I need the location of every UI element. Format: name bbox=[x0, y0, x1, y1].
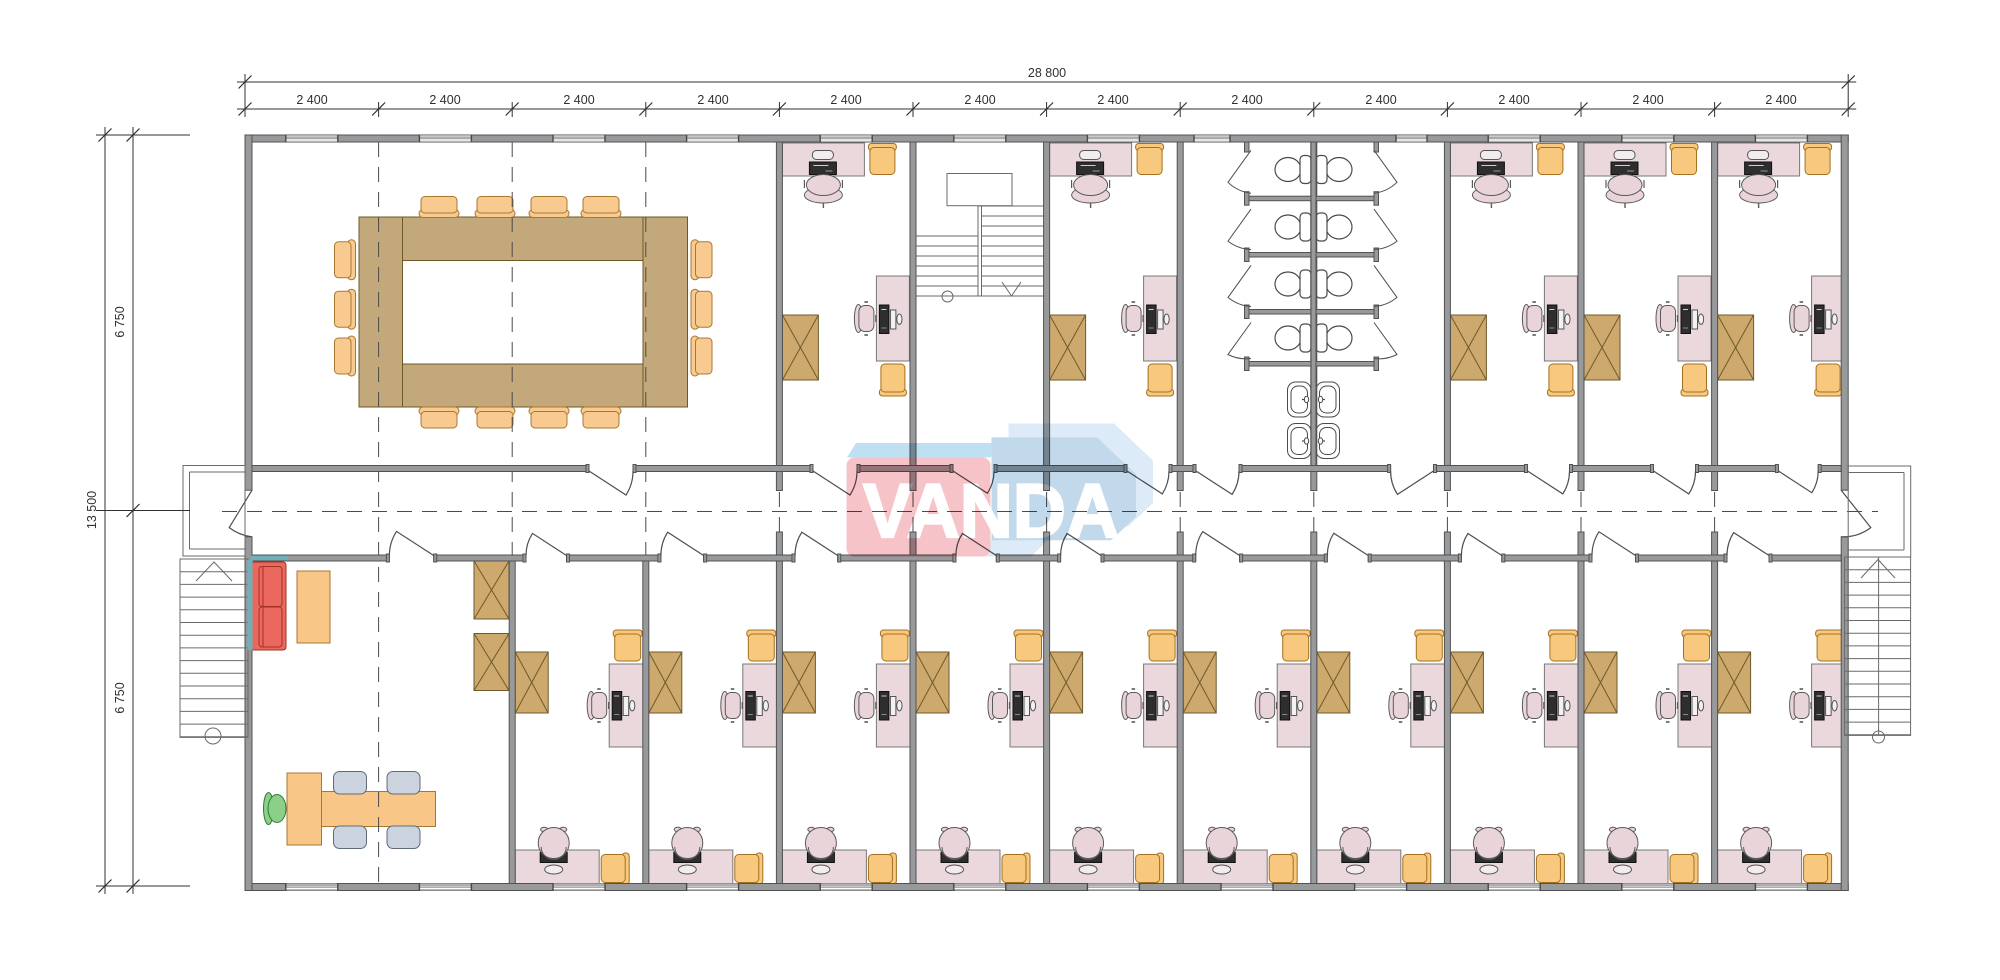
svg-text:13 500: 13 500 bbox=[85, 491, 99, 529]
svg-text:6 750: 6 750 bbox=[113, 682, 127, 713]
svg-text:28 800: 28 800 bbox=[1028, 66, 1066, 80]
svg-text:2 400: 2 400 bbox=[563, 93, 594, 107]
svg-text:2 400: 2 400 bbox=[1231, 93, 1262, 107]
svg-text:2 400: 2 400 bbox=[1498, 93, 1529, 107]
svg-text:2 400: 2 400 bbox=[830, 93, 861, 107]
svg-text:VANDA: VANDA bbox=[863, 469, 1119, 554]
svg-text:6 750: 6 750 bbox=[113, 306, 127, 337]
svg-text:2 400: 2 400 bbox=[964, 93, 995, 107]
svg-text:2 400: 2 400 bbox=[1765, 93, 1796, 107]
svg-text:2 400: 2 400 bbox=[697, 93, 728, 107]
svg-text:2 400: 2 400 bbox=[1632, 93, 1663, 107]
svg-text:2 400: 2 400 bbox=[429, 93, 460, 107]
svg-text:2 400: 2 400 bbox=[296, 93, 327, 107]
svg-text:2 400: 2 400 bbox=[1365, 93, 1396, 107]
svg-text:2 400: 2 400 bbox=[1097, 93, 1128, 107]
